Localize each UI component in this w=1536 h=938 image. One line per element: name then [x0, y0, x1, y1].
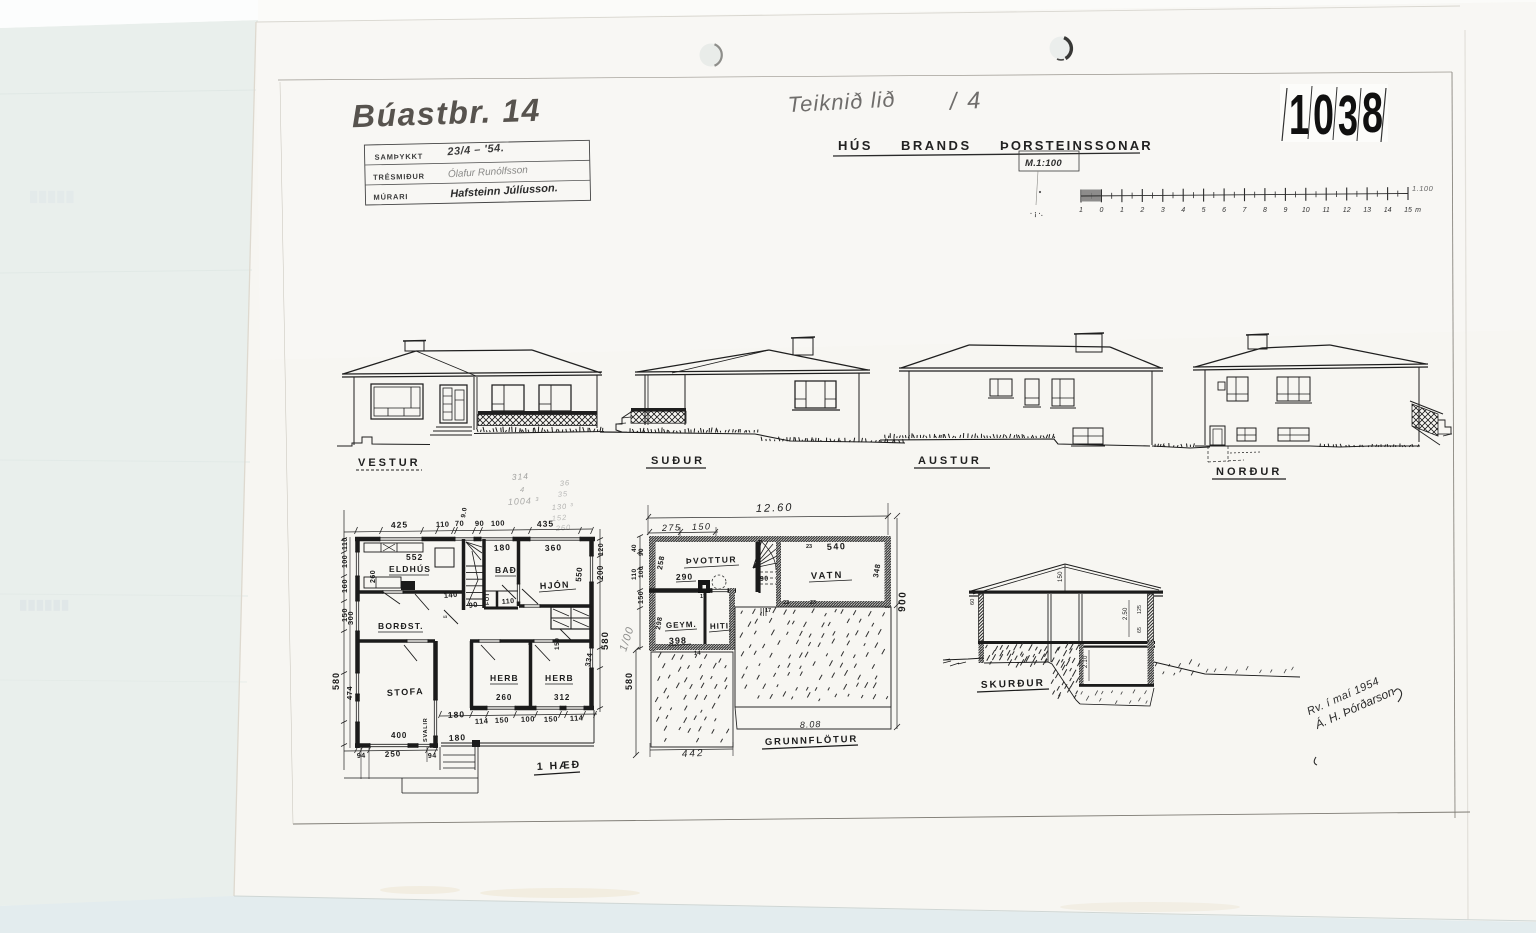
svg-text:· ¡ ·.: · ¡ ·. — [1030, 211, 1043, 218]
svg-text:¹³: ¹³ — [443, 615, 447, 622]
svg-text:360: 360 — [545, 542, 563, 553]
svg-text:8: 8 — [1263, 207, 1267, 214]
svg-text:150: 150 — [692, 521, 712, 532]
svg-text:2.50: 2.50 — [1123, 607, 1129, 620]
svg-text:GEYM.: GEYM. — [666, 620, 697, 630]
svg-text:HERB: HERB — [545, 673, 574, 683]
svg-text:312: 312 — [554, 693, 570, 702]
svg-text:160: 160 — [340, 579, 349, 593]
svg-text:260: 260 — [370, 570, 377, 583]
svg-text:NORÐUR: NORÐUR — [1216, 466, 1282, 478]
svg-text:HERB: HERB — [490, 673, 519, 683]
svg-text:290: 290 — [676, 571, 694, 582]
svg-text:1: 1 — [1120, 207, 1124, 214]
svg-text:94: 94 — [428, 753, 437, 760]
svg-text:474: 474 — [345, 686, 354, 700]
svg-text:180: 180 — [493, 542, 511, 553]
svg-text:150: 150 — [638, 591, 645, 604]
svg-text:23: 23 — [806, 544, 812, 550]
svg-text:540: 540 — [827, 541, 847, 552]
svg-text:23: 23 — [783, 600, 789, 606]
svg-text:60: 60 — [970, 598, 976, 605]
svg-text:M.1:100: M.1:100 — [1025, 158, 1062, 169]
svg-text:█████: █████ — [30, 190, 75, 204]
svg-text:SAMÞYKKT: SAMÞYKKT — [375, 152, 424, 162]
svg-text:17: 17 — [700, 594, 706, 600]
svg-text:114: 114 — [570, 713, 584, 723]
svg-text:100: 100 — [521, 714, 535, 724]
svg-text:65: 65 — [1137, 627, 1143, 633]
svg-text:94: 94 — [357, 753, 366, 760]
svg-text:BORÐST.: BORÐST. — [378, 621, 424, 631]
svg-text:2.10: 2.10 — [1083, 655, 1089, 668]
svg-text:8.08: 8.08 — [800, 719, 822, 730]
svg-text:100: 100 — [491, 519, 505, 528]
svg-text:VATN: VATN — [811, 570, 844, 582]
svg-text:90: 90 — [760, 576, 769, 583]
svg-text:1004 ³: 1004 ³ — [508, 495, 540, 507]
svg-text:BAÐ: BAÐ — [495, 565, 517, 575]
svg-text:VESTUR: VESTUR — [358, 457, 421, 469]
svg-text:9: 9 — [1283, 207, 1287, 214]
svg-text:150: 150 — [554, 638, 561, 650]
svg-text:110: 110 — [436, 520, 450, 529]
svg-text:110: 110 — [342, 537, 349, 550]
svg-text:HÚS: HÚS — [838, 138, 873, 153]
svg-text:HJÓN: HJÓN — [540, 578, 570, 591]
svg-text:TRÉSMIÐUR: TRÉSMIÐUR — [373, 172, 425, 182]
svg-text:250: 250 — [385, 749, 402, 759]
svg-text:ÞVOTTUR: ÞVOTTUR — [686, 554, 737, 566]
svg-text:15: 15 — [1404, 207, 1412, 214]
svg-text:180: 180 — [448, 709, 466, 720]
svg-text:100: 100 — [638, 566, 645, 578]
svg-text:m: m — [1415, 207, 1421, 214]
svg-text:4: 4 — [520, 485, 524, 494]
svg-text:1: 1 — [1289, 83, 1309, 147]
svg-text:275: 275 — [661, 522, 682, 533]
svg-text:314: 314 — [511, 471, 529, 482]
svg-text:150: 150 — [544, 714, 558, 724]
svg-text:425: 425 — [391, 519, 409, 530]
svg-text:SVALIR: SVALIR — [423, 717, 429, 742]
svg-text:12: 12 — [1343, 207, 1351, 214]
svg-text:3: 3 — [1161, 207, 1165, 214]
svg-text:8: 8 — [1362, 81, 1383, 145]
svg-text:580: 580 — [331, 672, 341, 690]
svg-text:1: 1 — [1079, 207, 1083, 214]
svg-text:ELDHÚS: ELDHÚS — [389, 563, 431, 574]
svg-text:120: 120 — [598, 543, 605, 556]
svg-text:180: 180 — [449, 732, 467, 743]
svg-text:5: 5 — [1202, 207, 1206, 214]
svg-text:110: 110 — [631, 569, 638, 580]
svg-text:200: 200 — [596, 565, 605, 580]
svg-text:35: 35 — [557, 489, 568, 499]
svg-text:260: 260 — [496, 693, 512, 702]
svg-text:90: 90 — [475, 519, 485, 528]
svg-text:¹³: ¹³ — [528, 642, 532, 649]
svg-text:MÚRARI: MÚRARI — [373, 192, 408, 202]
svg-text:6: 6 — [1222, 207, 1226, 214]
svg-text:HITI: HITI — [710, 621, 729, 631]
svg-text:██████: ██████ — [20, 599, 70, 611]
svg-text:900: 900 — [897, 591, 909, 613]
svg-text:/ 4: / 4 — [947, 87, 983, 116]
svg-text:442: 442 — [682, 748, 705, 760]
svg-text:Búastbr. 14: Búastbr. 14 — [351, 92, 541, 135]
svg-text:11: 11 — [1323, 207, 1330, 214]
svg-text:552: 552 — [406, 552, 423, 562]
svg-text:1 HÆÐ: 1 HÆÐ — [537, 759, 582, 773]
svg-text:STOFA: STOFA — [387, 686, 425, 698]
svg-text:90: 90 — [468, 600, 479, 610]
svg-text:150: 150 — [495, 715, 509, 725]
svg-text:3: 3 — [1338, 84, 1358, 148]
svg-text:0: 0 — [1099, 207, 1103, 214]
svg-text:140: 140 — [443, 590, 458, 600]
svg-text:13: 13 — [1363, 207, 1371, 214]
svg-text:10: 10 — [1302, 207, 1310, 214]
svg-text:114: 114 — [475, 716, 489, 726]
svg-text:125: 125 — [1137, 605, 1143, 614]
svg-text:260: 260 — [554, 523, 571, 533]
svg-text:130 ³: 130 ³ — [551, 501, 574, 512]
svg-text:4: 4 — [1181, 207, 1185, 214]
svg-text:400: 400 — [391, 731, 407, 740]
svg-text:0: 0 — [1313, 83, 1334, 147]
svg-text:150: 150 — [1058, 571, 1064, 582]
svg-text:435: 435 — [537, 518, 555, 529]
svg-text:23: 23 — [810, 600, 816, 606]
svg-text:1.100: 1.100 — [1412, 184, 1434, 193]
svg-text:BRANDS: BRANDS — [901, 138, 972, 153]
svg-text:300: 300 — [346, 611, 355, 625]
svg-text:SUÐUR: SUÐUR — [651, 455, 705, 467]
svg-text:100: 100 — [342, 555, 349, 568]
svg-text:12.60: 12.60 — [756, 502, 794, 515]
svg-text:14: 14 — [1384, 207, 1392, 214]
svg-text:110: 110 — [502, 598, 515, 606]
svg-text:550: 550 — [574, 567, 584, 583]
svg-text:40: 40 — [631, 544, 638, 552]
svg-text:FÖT: FÖT — [484, 592, 491, 605]
svg-text:70: 70 — [455, 519, 465, 528]
svg-text:580: 580 — [624, 672, 634, 690]
svg-text:2: 2 — [1139, 207, 1144, 214]
svg-text:AUSTUR: AUSTUR — [918, 455, 982, 467]
svg-text:36: 36 — [559, 478, 570, 488]
